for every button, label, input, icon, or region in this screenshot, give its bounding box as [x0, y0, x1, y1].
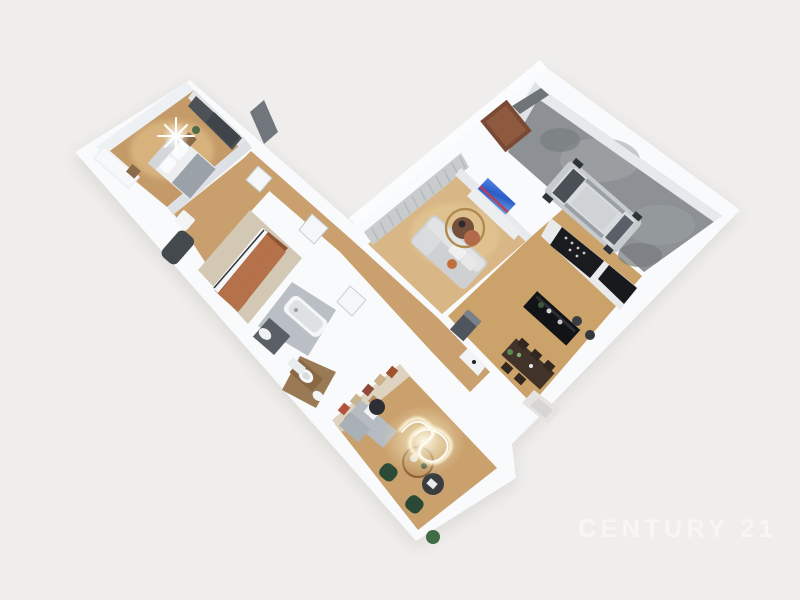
svg-text:CENTURY 21: CENTURY 21: [578, 515, 777, 543]
